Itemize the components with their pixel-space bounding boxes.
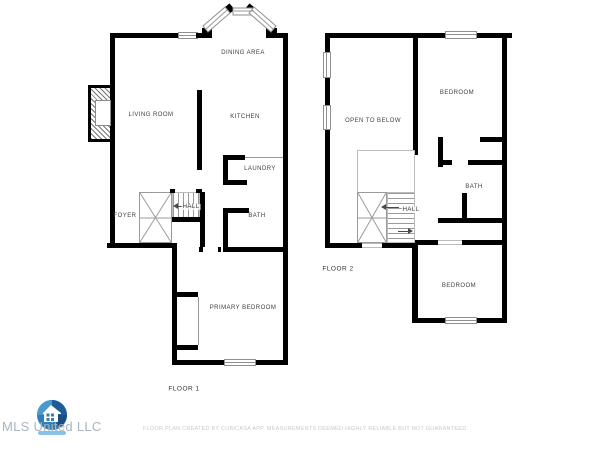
wall [325,243,362,248]
wall [418,240,438,245]
stairwell-outline [357,150,415,192]
wall [325,33,330,52]
stair-direction-arrow [408,228,413,234]
wall [172,292,198,297]
room-label-kitchen: KITCHEN [230,114,260,120]
room-label-hall-f2: HALL [402,207,421,213]
window [445,31,477,39]
stair-direction-arrow [173,203,178,209]
wall [172,217,205,222]
floorplan-canvas: DINING AREA LIVING ROOM KITCHEN LAUNDRY … [0,0,600,450]
wall [197,90,202,170]
disclaimer-text: FLOOR PLAN CREATED BY CUBICASA APP. MEAS… [143,426,468,432]
wall-thin [245,157,283,158]
room-label-living-room: LIVING ROOM [129,112,174,118]
room-label-laundry: LAUNDRY [244,166,276,172]
window [445,317,477,324]
wall [502,33,507,323]
wall [223,180,247,185]
room-label-open-to-below: OPEN TO BELOW [345,118,401,124]
wall [325,78,330,105]
window [323,52,331,78]
firebox [95,100,111,126]
window [323,105,331,130]
door-jamb [199,247,203,252]
wall [110,33,180,38]
door-opening [438,240,462,245]
door-jamb [218,247,221,252]
wall [462,240,507,245]
wall [325,33,445,38]
wall [412,240,418,323]
wall [325,130,330,248]
bay-window [192,0,287,42]
door-jamb [196,189,202,193]
room-label-bedroom-lower: BEDROOM [442,283,476,289]
floor2-title: FLOOR 2 [322,266,353,273]
stair-direction-arrow [381,204,386,210]
watermark-text: MLS United LLC [2,419,102,434]
room-label-bath-f2: BATH [465,184,482,190]
wall [468,160,502,165]
closet-front-line [198,297,199,345]
floor1-title: FLOOR 1 [168,386,199,393]
room-label-primary-bedroom: PRIMARY BEDROOM [210,305,277,311]
wall [283,33,288,365]
wall [480,137,507,142]
wall [223,155,245,160]
door-jamb [170,189,175,193]
stair-direction-line [385,207,399,208]
stair-closet [357,192,387,243]
stair-treads [387,192,415,243]
room-label-hall-f1: HALL [182,204,201,210]
room-label-bedroom-upper: BEDROOM [440,90,474,96]
window [224,359,256,366]
room-label-foyer: FOYER [114,213,137,219]
wall [438,218,507,223]
wall [413,33,418,155]
wall [438,160,452,165]
wall [172,345,198,350]
stair-closet [139,192,172,243]
wall [223,208,228,247]
room-label-dining-area: DINING AREA [221,50,265,56]
room-label-bath-f1: BATH [248,213,265,219]
wall [223,247,288,252]
